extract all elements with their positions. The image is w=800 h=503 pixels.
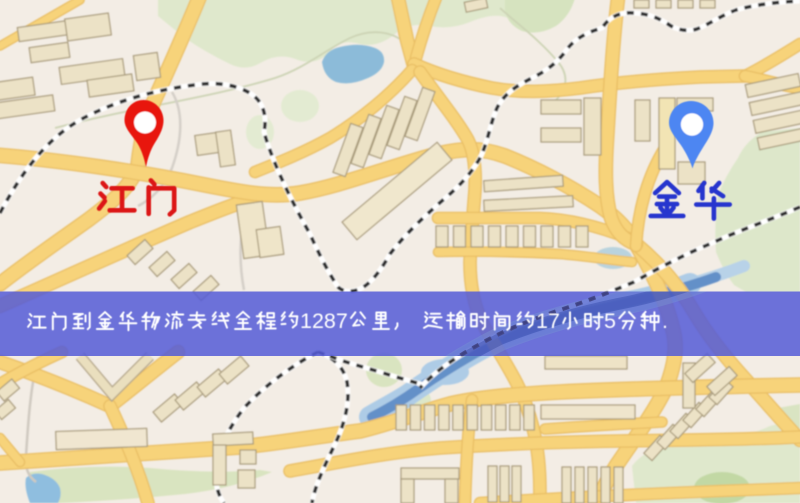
svg-text:5: 5 <box>604 309 616 333</box>
svg-text:1287: 1287 <box>300 309 348 333</box>
svg-text:.: . <box>662 309 668 333</box>
svg-text:17: 17 <box>536 309 560 333</box>
